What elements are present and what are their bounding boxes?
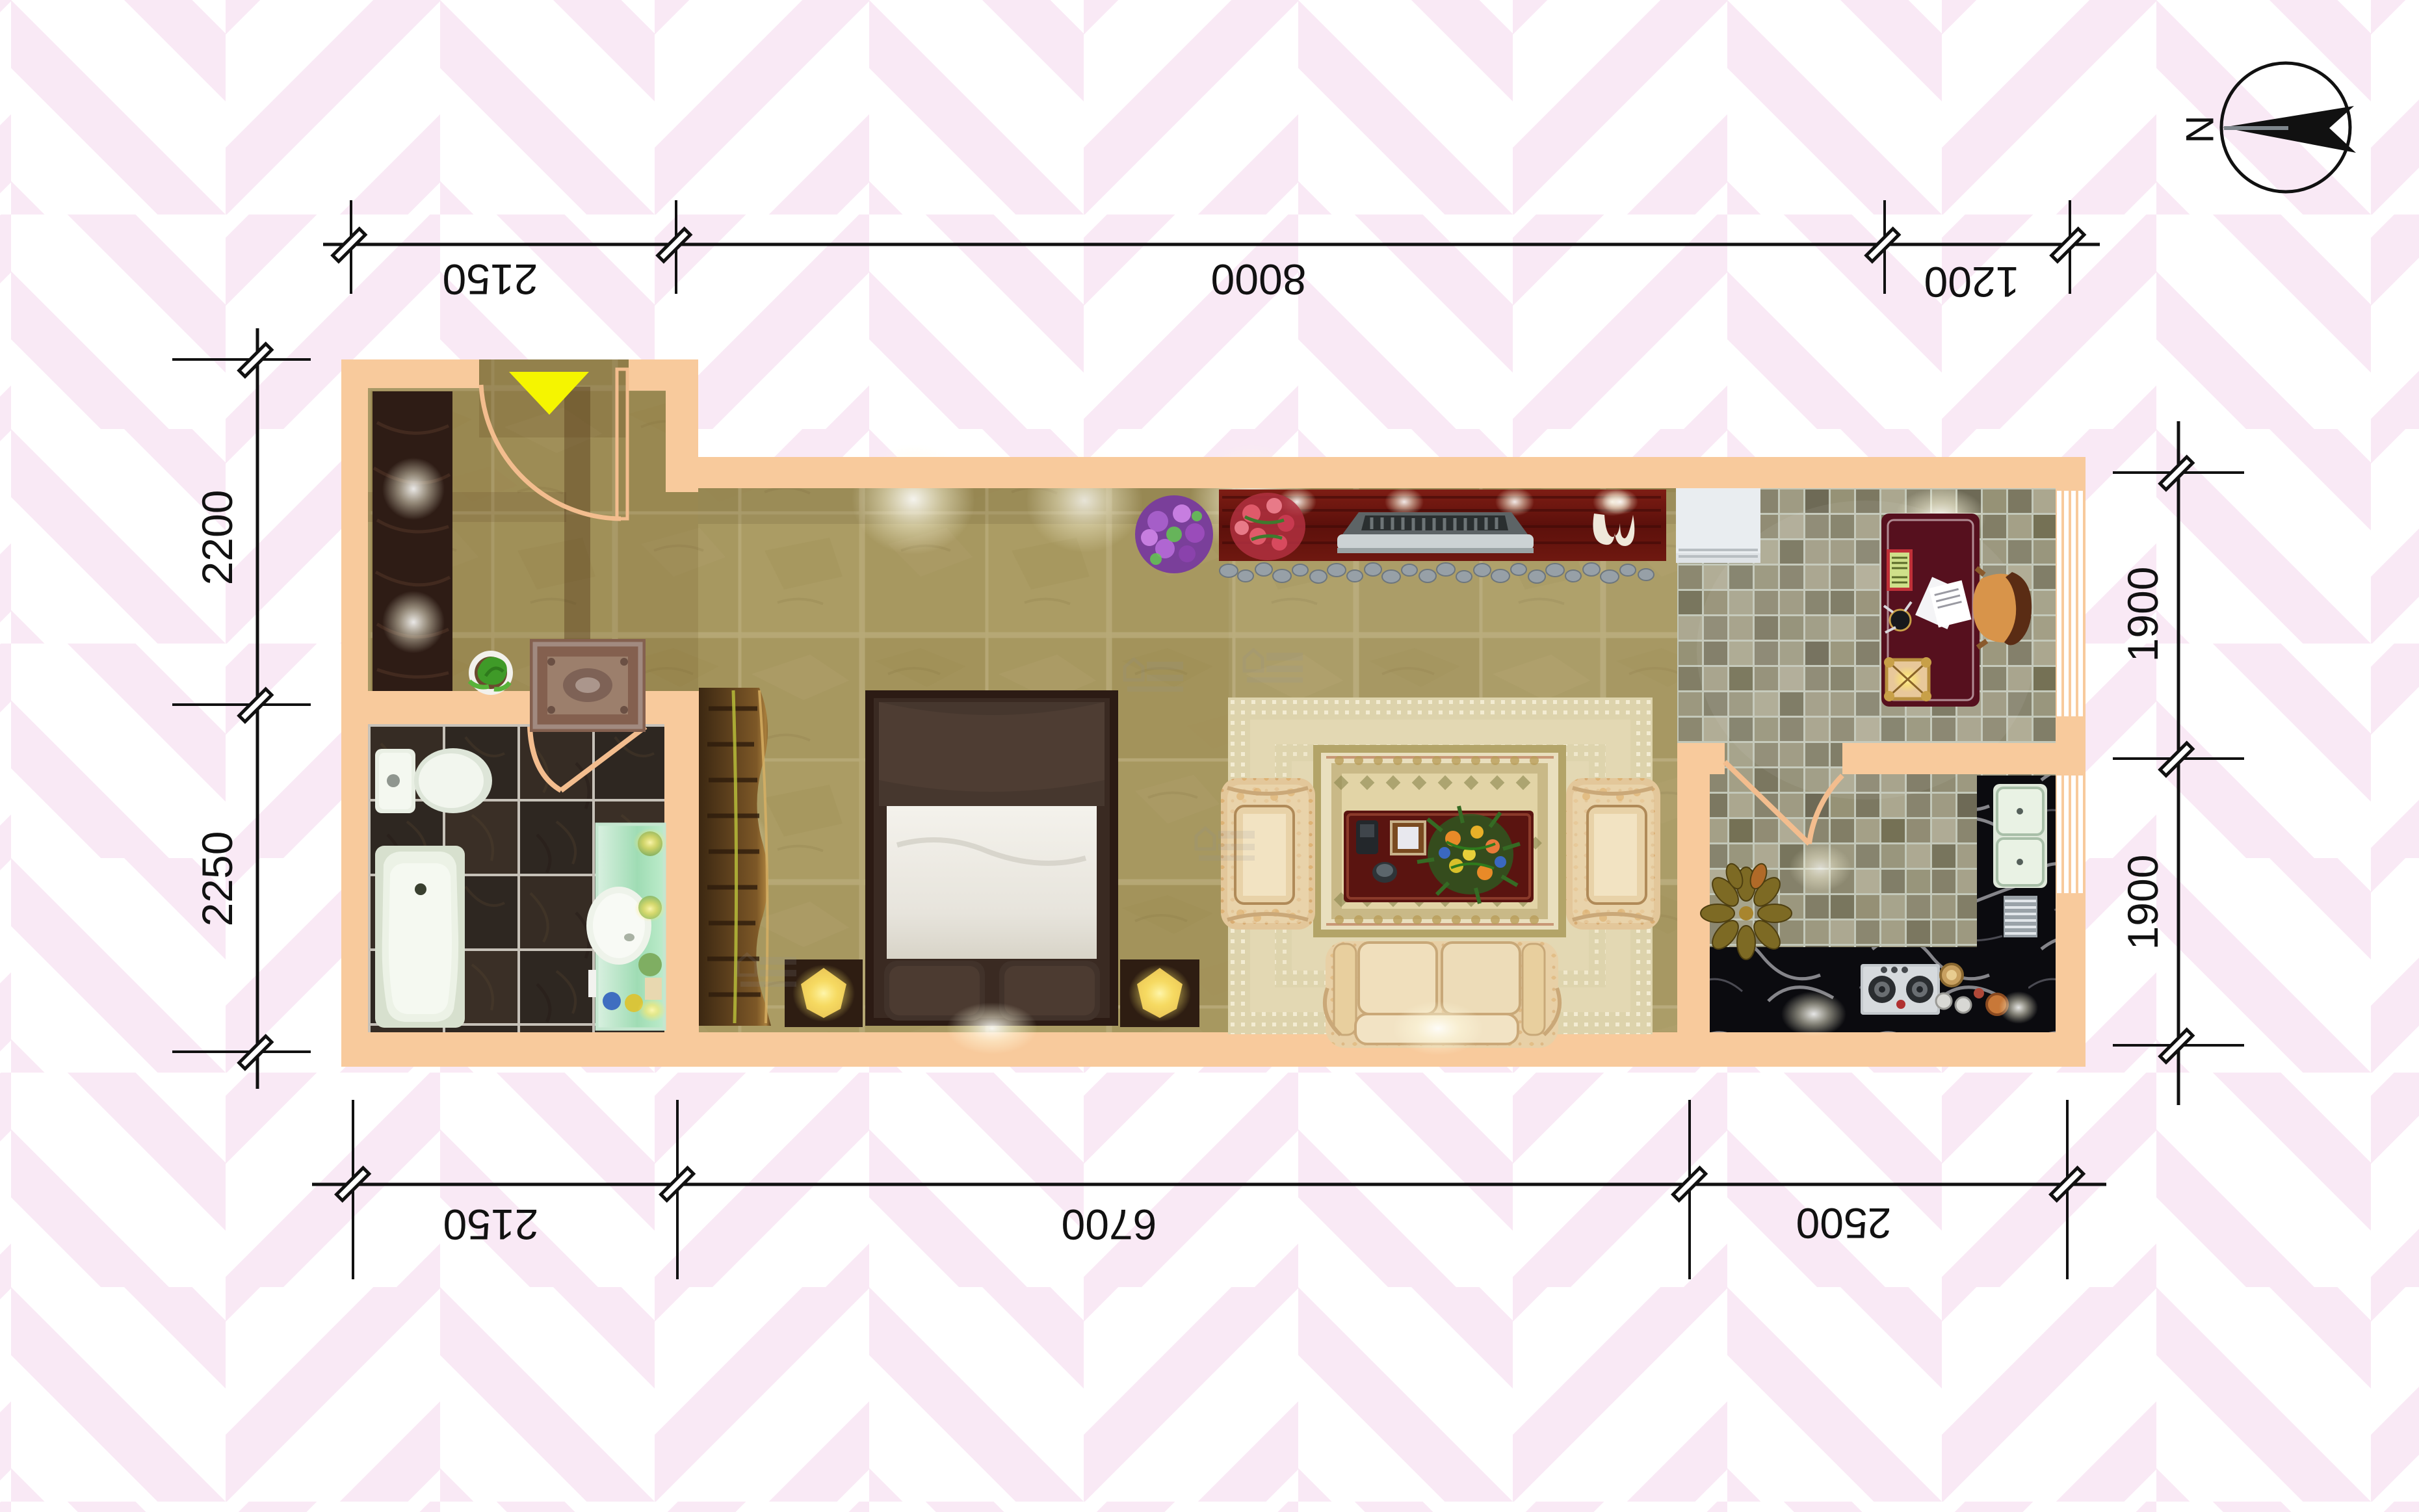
svg-text:8000: 8000 bbox=[1211, 255, 1307, 304]
svg-text:6700: 6700 bbox=[1062, 1201, 1157, 1249]
svg-text:2250: 2250 bbox=[193, 831, 241, 927]
svg-text:2200: 2200 bbox=[193, 490, 241, 586]
svg-text:2500: 2500 bbox=[1796, 1199, 1892, 1247]
svg-text:2150: 2150 bbox=[443, 1201, 539, 1249]
svg-text:N: N bbox=[2178, 115, 2222, 143]
svg-text:2150: 2150 bbox=[443, 255, 538, 304]
svg-text:1900: 1900 bbox=[2119, 855, 2167, 950]
svg-text:1200: 1200 bbox=[1924, 258, 2020, 306]
svg-text:1900: 1900 bbox=[2119, 567, 2167, 662]
